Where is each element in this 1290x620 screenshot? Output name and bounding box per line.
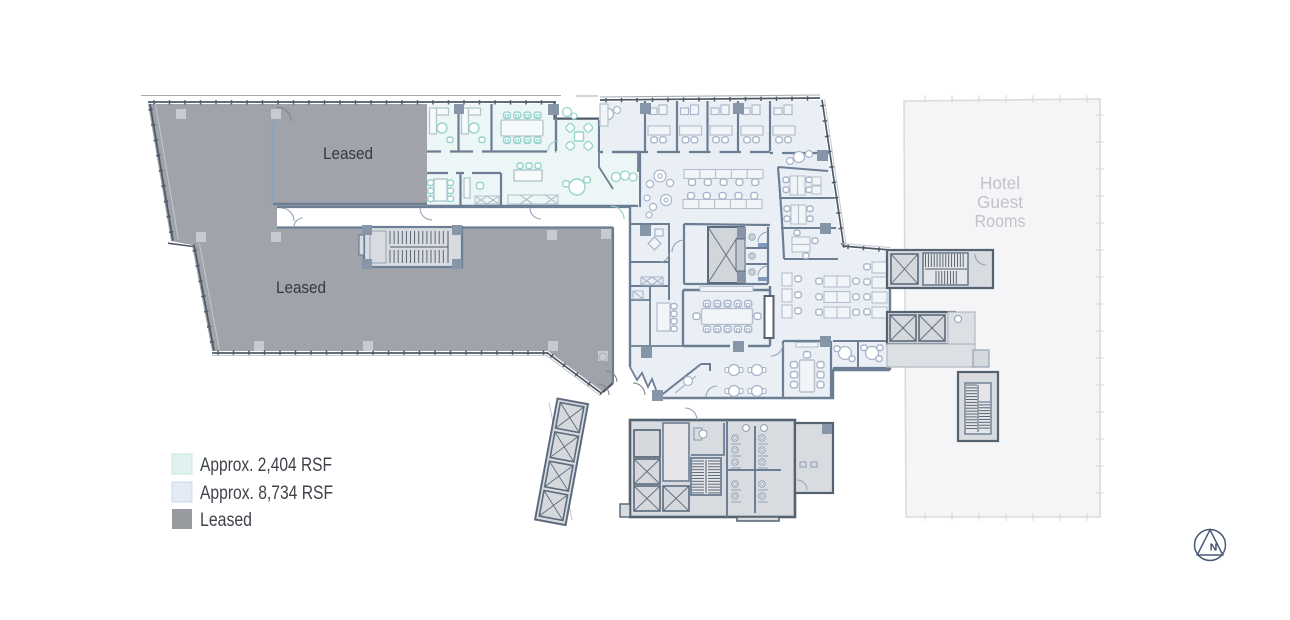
svg-text:Leased: Leased xyxy=(276,279,326,297)
svg-text:Approx. 2,404 RSF: Approx. 2,404 RSF xyxy=(200,455,332,476)
svg-text:Leased: Leased xyxy=(200,510,252,531)
svg-text:Guest: Guest xyxy=(977,192,1023,212)
svg-text:N: N xyxy=(1210,542,1218,554)
svg-text:Approx. 8,734 RSF: Approx. 8,734 RSF xyxy=(200,483,333,504)
svg-text:Leased: Leased xyxy=(323,145,373,163)
svg-text:Hotel: Hotel xyxy=(980,173,1020,193)
svg-text:Rooms: Rooms xyxy=(975,211,1026,231)
